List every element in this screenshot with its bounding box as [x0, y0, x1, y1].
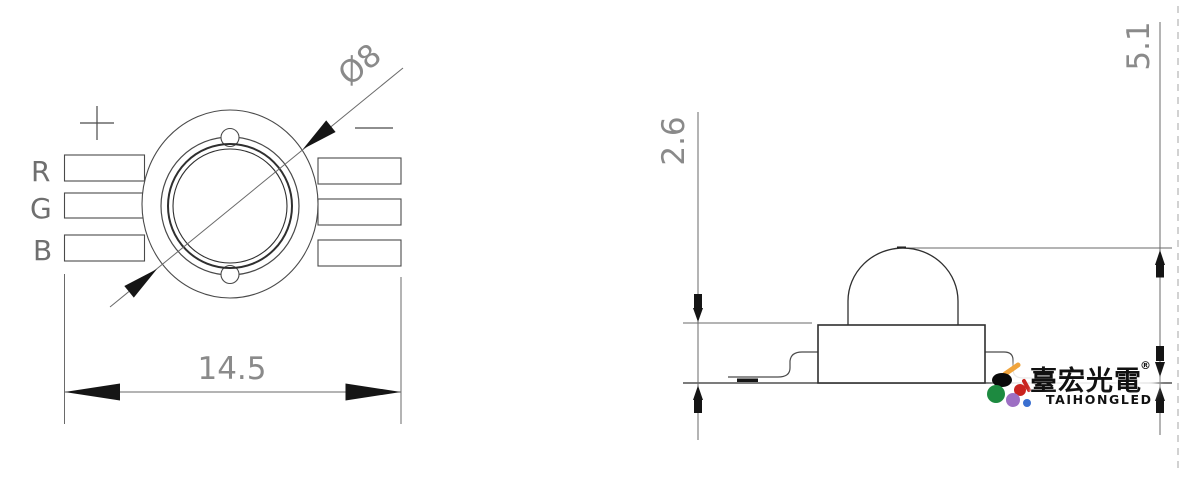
drawing-canvas: [0, 0, 1182, 481]
blue-dot-icon: [1023, 399, 1031, 407]
pin-label-r: R: [31, 155, 50, 188]
pin-right-lead-1: [318, 158, 401, 184]
arrow-tail: [1156, 346, 1164, 361]
pin-right-lead-3: [318, 240, 401, 266]
dim-overall-width: 14.5: [197, 351, 267, 387]
arrowhead: [693, 386, 703, 401]
drawing-page: R G B 14.5 Ø8 2.6 5.1 臺宏光電 ® TAIHONGLED: [0, 0, 1182, 481]
left-lead-foot: [737, 379, 758, 383]
body-outline: [818, 325, 985, 383]
registered-mark-icon: ®: [1140, 359, 1151, 372]
dome-outline: [848, 248, 958, 325]
arrow-tail: [1156, 400, 1164, 413]
pin-right-lead-2: [318, 199, 401, 225]
arrowhead: [1155, 250, 1165, 265]
pin-label-b: B: [33, 234, 52, 267]
black-dot-icon: [992, 373, 1012, 387]
plus-symbol: [80, 106, 114, 140]
arrow-tail: [694, 399, 702, 413]
pin-b-lead: [65, 235, 145, 261]
arrowhead: [124, 269, 157, 298]
pin-label-g: G: [30, 192, 52, 225]
dim-body-height: 2.6: [656, 109, 692, 173]
dim-total-height: 5.1: [1121, 14, 1157, 78]
logo-latin-name: TAIHONGLED: [1046, 392, 1153, 407]
arrowhead: [346, 384, 402, 401]
arrow-tail: [694, 294, 702, 308]
left-lead: [728, 352, 818, 377]
green-dot-icon: [987, 385, 1005, 403]
arrowhead: [1155, 362, 1165, 377]
arrowhead: [303, 120, 336, 149]
purple-dot-icon: [1006, 393, 1020, 407]
arrowhead: [693, 308, 703, 322]
pin-r-lead: [65, 155, 145, 181]
pin-g-lead: [65, 193, 145, 218]
arrow-tail: [1156, 264, 1164, 278]
arrowhead: [65, 384, 121, 401]
